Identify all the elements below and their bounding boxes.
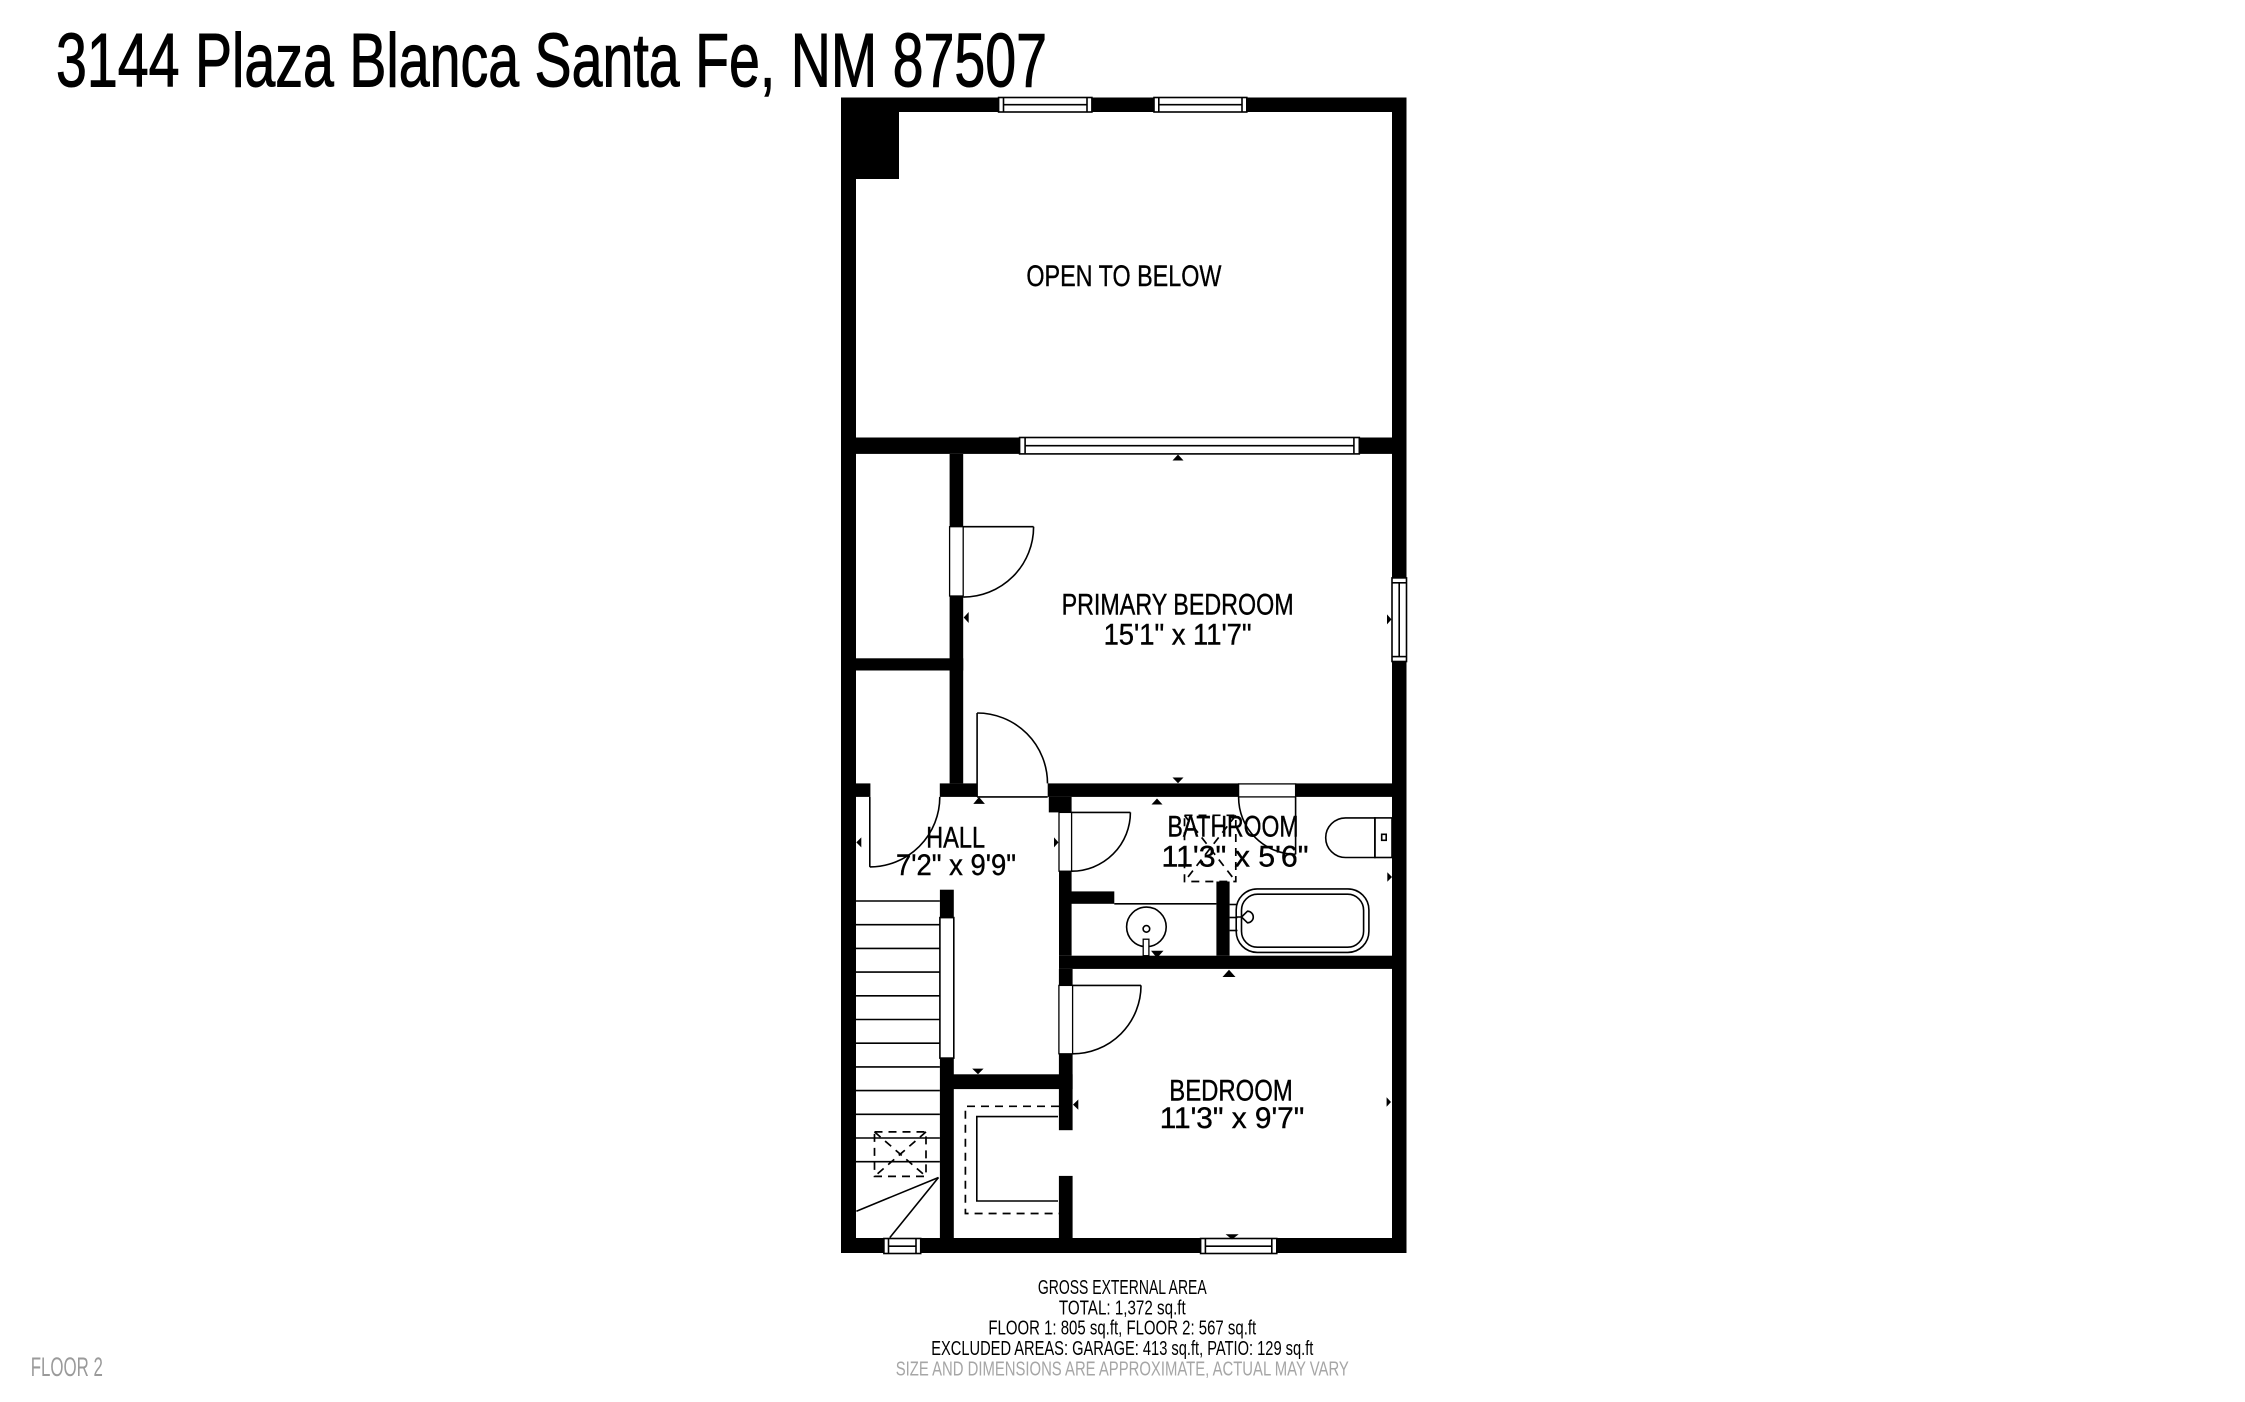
svg-text:FLOOR 2: FLOOR 2 [31,1352,103,1382]
svg-text:OPEN TO BELOW: OPEN TO BELOW [1026,260,1222,293]
svg-text:EXCLUDED AREAS: GARAGE: 413 sq: EXCLUDED AREAS: GARAGE: 413 sq.ft, PATIO… [931,1338,1313,1360]
svg-text:TOTAL: 1,372 sq.ft: TOTAL: 1,372 sq.ft [1059,1297,1186,1319]
svg-text:GROSS EXTERNAL AREA: GROSS EXTERNAL AREA [1038,1277,1207,1299]
svg-text:3144 Plaza Blanca Santa Fe, NM: 3144 Plaza Blanca Santa Fe, NM 87507 [56,18,1047,103]
svg-text:7'2" x 9'9": 7'2" x 9'9" [896,849,1016,882]
svg-text:FLOOR 1: 805 sq.ft, FLOOR 2: 5: FLOOR 1: 805 sq.ft, FLOOR 2: 567 sq.ft [988,1318,1256,1340]
svg-text:11'3" x 9'7": 11'3" x 9'7" [1160,1102,1305,1135]
svg-text:15'1" x 11'7": 15'1" x 11'7" [1104,618,1252,651]
svg-text:SIZE AND DIMENSIONS ARE APPROX: SIZE AND DIMENSIONS ARE APPROXIMATE, ACT… [896,1358,1349,1380]
svg-text:PRIMARY BEDROOM: PRIMARY BEDROOM [1062,589,1294,622]
